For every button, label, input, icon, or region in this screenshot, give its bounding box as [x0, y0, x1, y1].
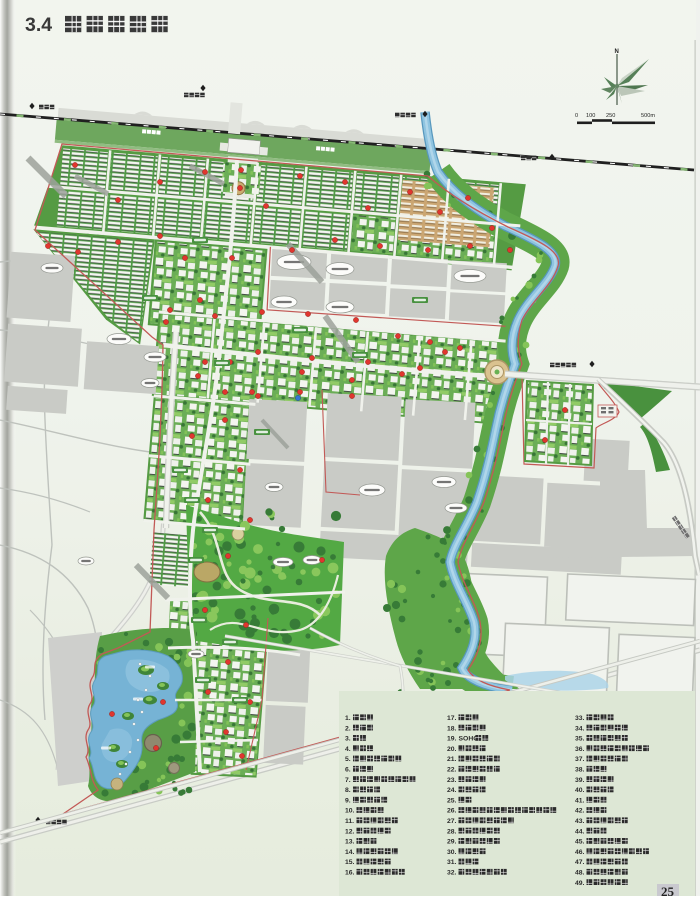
svg-text:13.: 13.: [345, 839, 355, 846]
svg-text:28.: 28.: [447, 828, 457, 835]
svg-text:12.: 12.: [345, 828, 355, 835]
svg-text:30.: 30.: [447, 849, 457, 856]
svg-text:15.: 15.: [345, 859, 355, 866]
svg-text:40.: 40.: [575, 787, 585, 794]
svg-text:27.: 27.: [447, 818, 457, 825]
svg-text:23.: 23.: [447, 777, 457, 784]
svg-text:10.: 10.: [345, 808, 355, 815]
svg-text:32.: 32.: [447, 870, 457, 877]
svg-text:2.: 2.: [345, 725, 351, 732]
svg-text:37.: 37.: [575, 756, 585, 763]
svg-text:9.: 9.: [345, 797, 351, 804]
svg-text:45.: 45.: [575, 839, 585, 846]
svg-text:16.: 16.: [345, 870, 355, 877]
svg-text:3.: 3.: [345, 736, 351, 743]
svg-text:42.: 42.: [575, 808, 585, 815]
svg-text:41.: 41.: [575, 797, 585, 804]
svg-text:35.: 35.: [575, 736, 585, 743]
svg-text:19.: 19.: [447, 736, 457, 743]
svg-text:21.: 21.: [447, 756, 457, 763]
svg-text:24.: 24.: [447, 787, 457, 794]
svg-text:7.: 7.: [345, 777, 351, 784]
svg-text:4.: 4.: [345, 746, 351, 753]
svg-text:36.: 36.: [575, 746, 585, 753]
svg-text:14.: 14.: [345, 849, 355, 856]
svg-text:48.: 48.: [575, 870, 585, 877]
svg-text:6.: 6.: [345, 767, 351, 774]
svg-text:11.: 11.: [345, 818, 354, 825]
svg-text:26.: 26.: [447, 808, 457, 815]
svg-text:38.: 38.: [575, 767, 585, 774]
svg-text:18.: 18.: [447, 725, 457, 732]
svg-text:44.: 44.: [575, 828, 585, 835]
svg-text:39.: 39.: [575, 777, 585, 784]
svg-text:17.: 17.: [447, 715, 457, 722]
svg-text:34.: 34.: [575, 725, 585, 732]
svg-text:8.: 8.: [345, 787, 351, 794]
svg-text:25: 25: [661, 884, 675, 896]
svg-text:43.: 43.: [575, 818, 585, 825]
svg-text:25.: 25.: [447, 797, 457, 804]
svg-text:22.: 22.: [447, 767, 457, 774]
svg-text:20.: 20.: [447, 746, 457, 753]
svg-text:47.: 47.: [575, 859, 585, 866]
svg-text:1.: 1.: [345, 715, 351, 722]
svg-text:29.: 29.: [447, 839, 457, 846]
svg-text:5.: 5.: [345, 756, 351, 763]
svg-text:31.: 31.: [447, 859, 457, 866]
svg-text:46.: 46.: [575, 849, 585, 856]
svg-text:33.: 33.: [575, 715, 585, 722]
svg-text:49.: 49.: [575, 880, 585, 887]
